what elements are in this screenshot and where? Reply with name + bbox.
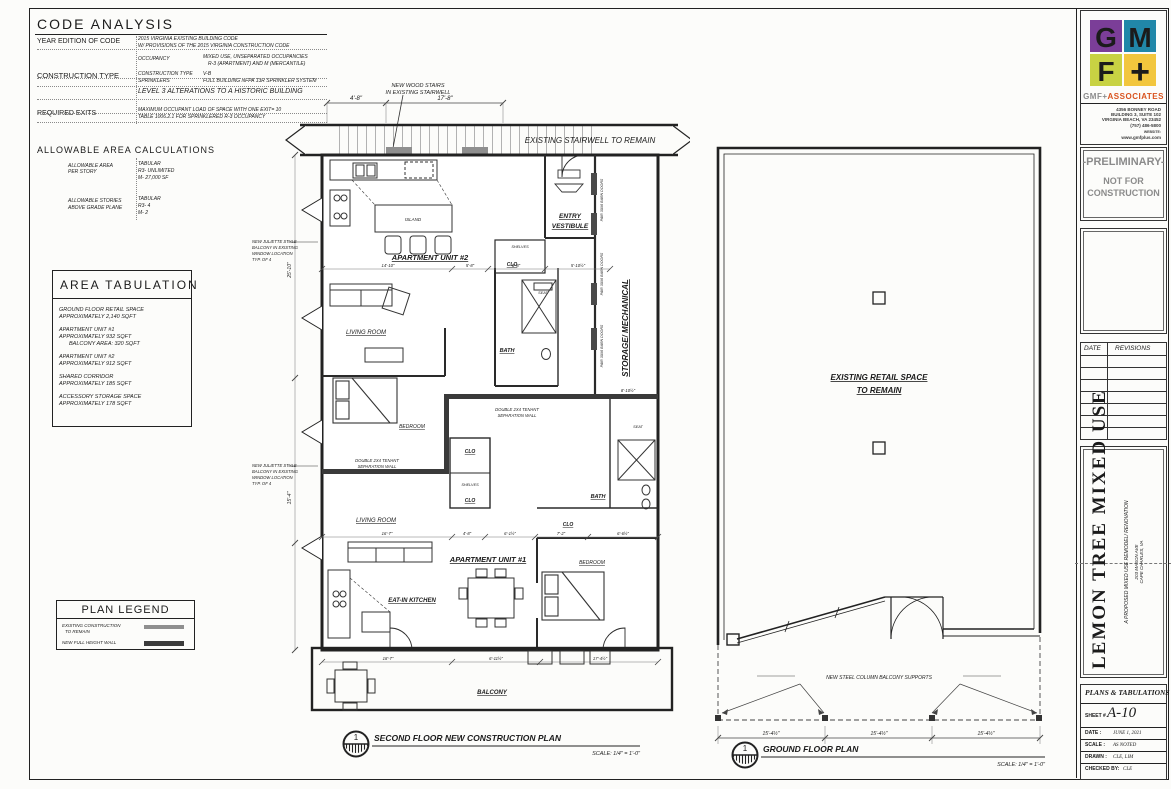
website-url: www.gmfplus.com [1121, 135, 1161, 140]
dim-label: 8'-10½" [621, 388, 636, 393]
closet-label: SHELVES [461, 483, 479, 487]
project-title: LEMON TREE MIXED USE [1089, 455, 1111, 669]
plan-scale: SCALE: 1/4" = 1'-0" [997, 762, 1046, 768]
not-for-line1: NOT FOR [1103, 176, 1144, 186]
dim-label: 7'-2" [557, 531, 566, 536]
storefront [727, 597, 1040, 645]
logo-letter-m: M [1128, 22, 1151, 53]
dim-label: 15'-4½" [978, 730, 995, 737]
closet-label: SHELVES [511, 245, 529, 249]
occupancy-line1: MIXED USE, UNSEPARATED OCCUPANCIES [203, 55, 308, 61]
construction-value: V-B [203, 72, 211, 78]
dim-label: 16'-7" [382, 531, 393, 536]
plan-scale: SCALE: 1/4" = 1'-0" [592, 751, 641, 757]
plan-marker: 1 [354, 733, 359, 742]
exits-label: REQUIRED EXITS [37, 110, 96, 118]
dim-label: 15'-4½" [871, 730, 888, 737]
room-label-storage: STORAGE/ MECHANICAL [621, 279, 630, 377]
scale-label: SCALE : [1085, 743, 1105, 749]
dim-label: 4'-8" [350, 96, 363, 102]
room-label-balcony: BALCONY [477, 690, 508, 696]
legend-swatch-existing [144, 625, 184, 629]
legend-item-existing2: TO REMAIN [65, 629, 90, 634]
tab-entry: SHARED CORRIDOR [59, 374, 113, 380]
drawn-value: CLE, LIM [1113, 755, 1133, 761]
plan-legend-title: PLAN LEGEND [81, 604, 169, 617]
logo-letter-f: F [1097, 56, 1114, 86]
preliminary-box: -PRELIMINARY- NOT FOR CONSTRUCTION [1080, 147, 1167, 221]
ground-floor-title: 1 GROUND FLOOR PLAN SCALE: 1/4" = 1'-0" [733, 743, 1047, 769]
stairwell-label: EXISTING STAIRWELL TO REMAIN [525, 136, 656, 145]
area-value2: R3- UNLIMITED [138, 169, 174, 175]
architectural-drawing-sheet: CODE ANALYSIS YEAR EDITION OF CODE 2015 … [0, 0, 1171, 789]
closet-label: CLO [563, 522, 574, 528]
room-label-bedroom1: BEDROOM [399, 424, 426, 430]
room-label-island: ISLAND [405, 217, 422, 222]
project-box: LEMON TREE MIXED USE A PROPOSED MIXED US… [1080, 446, 1167, 678]
logo-letter-g: G [1095, 22, 1117, 53]
note-line: SEPARATION WALL [358, 464, 398, 469]
supports-note-text: NEW STEEL COLUMN BALCONY SUPPORTS [826, 675, 933, 681]
supports-note: NEW STEEL COLUMN BALCONY SUPPORTS [722, 675, 1037, 715]
revision-row [1081, 356, 1166, 368]
room-label-unit1: APARTMENT UNIT #1 [449, 555, 526, 564]
room-label-bath2: BATH [591, 494, 607, 500]
closet-label: CLO [507, 262, 518, 268]
room-label-retail2: TO REMAIN [857, 386, 902, 395]
second-floor-plan: 4'-8" 17'-8" NEW WOOD STAIRS IN EXISTING… [240, 78, 690, 778]
tab-entry: APPROXIMATELY 178 SQFT [59, 401, 131, 407]
dim-label: 5'-8" [466, 263, 475, 268]
room-label-vestibule: VESTIBULE [552, 223, 589, 230]
title-underline [35, 34, 327, 35]
barn-door-label: PAIR 30X6 BARN DOORS [600, 252, 604, 295]
top-dimensions: 4'-8" 17'-8" [324, 96, 506, 123]
dim-label: 6'-6½" [617, 531, 629, 536]
tab-entry: GROUND FLOOR RETAIL SPACE [59, 307, 144, 313]
barn-door-label: PAIR 30X6 BARN DOORS [600, 178, 604, 221]
ground-dimensions: 15'-4½" 15'-4½" 15'-4½" [715, 726, 1043, 744]
stairwell: EXISTING STAIRWELL TO REMAIN [286, 125, 690, 155]
note-line: WINDOW LOCATION [252, 475, 294, 480]
balcony: 18'-7" 6'-11½" 17'-4½" BALCONY [312, 648, 672, 710]
left-dimensions: 25'-10" 15'-4" [287, 152, 298, 653]
rev-header: REVISIONS [1115, 345, 1150, 352]
sheet-info-box: PLANS & TABULATIONS SHEET # A-10 DATE : … [1080, 684, 1167, 780]
dim-label: 4'-8" [463, 531, 472, 536]
juliette-note-1: NEW JULIETTE STYLE BALCONY IN EXISTING W… [252, 239, 318, 262]
firm-address: 4356 BONNEY ROAD BUILDING 3, SUITE 102 V… [1102, 107, 1161, 128]
plan-title: GROUND FLOOR PLAN [763, 744, 859, 754]
note-line: TYP. OF 4 [252, 481, 272, 486]
allowable-title: ALLOWABLE AREA CALCULATIONS [37, 145, 215, 155]
dim-label: 17'-8" [437, 96, 453, 102]
dim-label: 25'-10" [287, 262, 293, 279]
stairs-note-line2: IN EXISTING STAIRWELL [386, 90, 451, 96]
firm-name-gmf: GMF+ [1083, 92, 1107, 101]
exterior-walls [302, 155, 658, 650]
gmf-logo: G M F + [1090, 20, 1156, 86]
note-line: DOUBLE 2X4 TENANT [495, 407, 539, 412]
dim-label: 14'-10" [382, 263, 396, 268]
area-value1: TABULAR [138, 162, 161, 168]
logo-letter-plus: + [1130, 53, 1150, 86]
code-analysis-title: CODE ANALYSIS [37, 16, 174, 32]
stories-value1: TABULAR [138, 197, 161, 203]
juliette-note-2: NEW JULIETTE STYLE BALCONY IN EXISTING W… [252, 463, 318, 486]
ground-floor-plan: EXISTING RETAIL SPACE TO REMAIN [705, 140, 1075, 770]
stairs-note-line1: NEW WOOD STAIRS [391, 83, 444, 89]
tab-entry: APPROXIMATELY 932 SQFT [59, 334, 131, 340]
stories-label1: ALLOWABLE STORIES [68, 199, 121, 205]
tab-entry: ACCESSORY STORAGE SPACE [59, 394, 141, 400]
dim-label: 15'-4" [287, 491, 293, 504]
legend-item-newwall: NEW FULL HEIGHT WALL [62, 640, 116, 645]
firm-name: GMF+ASSOCIATES [1083, 92, 1164, 101]
project-subtitle: A PROPOSED MIXED USE REMODEL/ RENOVATION [1125, 465, 1131, 659]
sprinklers-key: SPRINKLERS [138, 79, 170, 85]
date-value: JUNE 1, 2021 [1113, 731, 1141, 737]
sheet-number: A-10 [1107, 705, 1136, 722]
area-tabulation-title: AREA TABULATION [60, 279, 199, 293]
note-line: NEW JULIETTE STYLE [252, 463, 297, 468]
room-label-bedroom2: BEDROOM [579, 560, 606, 566]
empty-box [1080, 228, 1167, 334]
preliminary-stamp: -PRELIMINARY- [1082, 156, 1164, 169]
seat-label: SEAT [538, 291, 548, 295]
seat-label: SEAT [633, 425, 643, 429]
date-label: DATE : [1085, 731, 1101, 737]
occupancy-line2: R-3 (APARTMENT) AND M (MERCANTILE) [208, 62, 305, 68]
sheet-type: PLANS & TABULATIONS [1085, 689, 1170, 698]
stories-value3: M- 2 [138, 211, 148, 217]
firm-name-associates: ASSOCIATES [1108, 92, 1164, 101]
project-address: 203 MASON AVE CAPE CHARLES, VA [1134, 477, 1144, 647]
legend-swatch-newwall [144, 641, 184, 646]
retail-walls [718, 148, 1040, 645]
dim-label: 5'-10½" [571, 263, 586, 268]
not-for-line2: CONSTRUCTION [1087, 188, 1160, 198]
address-line3: VIRGINIA BEACH, VA 23452 [1102, 117, 1161, 122]
note-line: DOUBLE 2X4 TENANT [355, 458, 399, 463]
note-line: TYP. OF 4 [252, 257, 272, 262]
dim-label: 15'-4½" [763, 730, 780, 737]
revision-row [1081, 368, 1166, 380]
closet-label: CLO [465, 498, 476, 504]
address-line4: (757) 486-5800 [1102, 123, 1161, 128]
tab-entry: APPROXIMATELY 185 SQFT [59, 381, 131, 387]
room-label-living2: LIVING ROOM [356, 518, 396, 524]
room-label-retail1: EXISTING RETAIL SPACE [831, 373, 929, 382]
plan-marker: 1 [743, 744, 748, 753]
rev-date-header: DATE [1084, 345, 1101, 352]
titleblock-divider [1076, 8, 1077, 778]
year-label: YEAR EDITION OF CODE [37, 38, 120, 46]
note-line: NEW JULIETTE STYLE [252, 239, 297, 244]
dim-label: 17'-4½" [593, 656, 608, 661]
area-tabulation-box: AREA TABULATION GROUND FLOOR RETAIL SPAC… [52, 270, 192, 427]
tab-entry: BALCONY AREA: 320 SQFT [69, 341, 140, 347]
sheet-label: SHEET # [1085, 714, 1106, 720]
plan-title: SECOND FLOOR NEW CONSTRUCTION PLAN [374, 733, 562, 743]
dim-label: 18'-7" [383, 656, 394, 661]
room-label-unit2: APARTMENT UNIT #2 [391, 253, 469, 262]
tab-entry: APPROXIMATELY 912 SQFT [59, 361, 131, 367]
legend-item-existing: EXISTING CONSTRUCTION [62, 623, 121, 628]
note-line: SEPARATION WALL [498, 413, 538, 418]
area-label2: PER STORY [68, 170, 97, 176]
separation-note-right: DOUBLE 2X4 TENANT SEPARATION WALL [495, 407, 539, 418]
room-label-eatin: EAT-IN KITCHEN [388, 598, 436, 604]
construction-label: CONSTRUCTION TYPE [37, 72, 119, 81]
project-address-line2: CAPE CHARLES, VA [1139, 477, 1144, 647]
area-value3: M- 27,000 SF [138, 176, 168, 182]
drawn-label: DRAWN : [1085, 755, 1107, 761]
note-line: BALCONY IN EXISTING [252, 245, 299, 250]
room-label-bath1: BATH [500, 348, 516, 354]
closet-label: CLO [465, 449, 476, 455]
website-label: WEBSITE: [1144, 130, 1161, 134]
plan-legend-box: PLAN LEGEND EXISTING CONSTRUCTION TO REM… [56, 600, 195, 650]
checked-label: CHECKED BY: [1085, 767, 1119, 773]
scale-value: AS NOTED [1113, 743, 1136, 749]
checked-value: CLE [1123, 767, 1132, 773]
tab-entry: APPROXIMATELY 2,140 SQFT [59, 314, 136, 320]
second-floor-title: 1 SECOND FLOOR NEW CONSTRUCTION PLAN SCA… [344, 732, 642, 758]
dim-label: 6'-11½" [489, 656, 503, 661]
tab-entry: APARTMENT UNIT #2 [59, 354, 114, 360]
room-label-entry: ENTRY [559, 213, 582, 220]
construction-key: CONSTRUCTION TYPE [138, 72, 193, 78]
separation-note-left: DOUBLE 2X4 TENANT SEPARATION WALL [355, 458, 399, 469]
tab-entry: APARTMENT UNIT #1 [59, 327, 114, 333]
note-line: BALCONY IN EXISTING [252, 469, 299, 474]
occupancy-key: OCCUPANCY [138, 57, 170, 63]
stories-value2: R3- 4 [138, 204, 150, 210]
logo-box: G M F + GMF+ASSOCIATES 4356 BONNEY ROAD … [1080, 10, 1167, 145]
stories-label2: ABOVE GRADE PLANE [68, 206, 122, 212]
room-label-living1: LIVING ROOM [346, 330, 386, 336]
barn-door-label: PAIR 30X6 BARN DOORS [600, 324, 604, 367]
year-line1: 2015 VIRGINIA EXISTING BUILDING CODE [138, 37, 238, 43]
note-line: WINDOW LOCATION [252, 251, 294, 256]
dim-label: 6'-1½" [504, 531, 516, 536]
